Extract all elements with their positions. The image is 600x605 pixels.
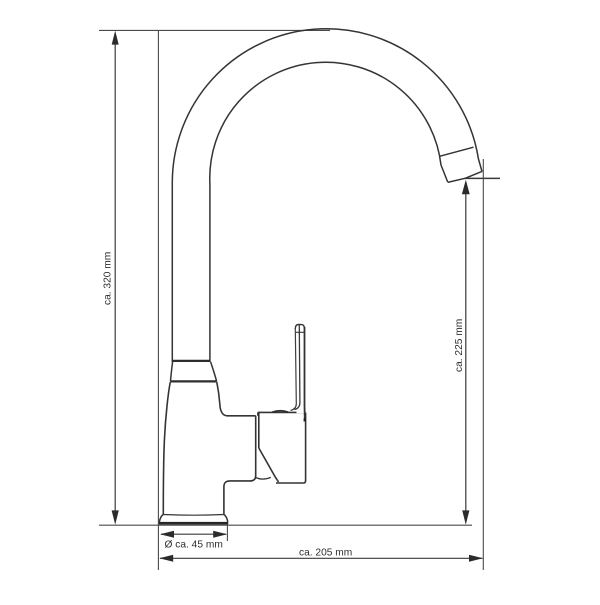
svg-text:ca. 320 mm: ca. 320 mm: [102, 252, 113, 305]
svg-text:Ø ca. 45 mm: Ø ca. 45 mm: [165, 540, 223, 551]
svg-text:ca. 205 mm: ca. 205 mm: [299, 547, 352, 558]
svg-text:ca. 225 mm: ca. 225 mm: [454, 319, 465, 372]
